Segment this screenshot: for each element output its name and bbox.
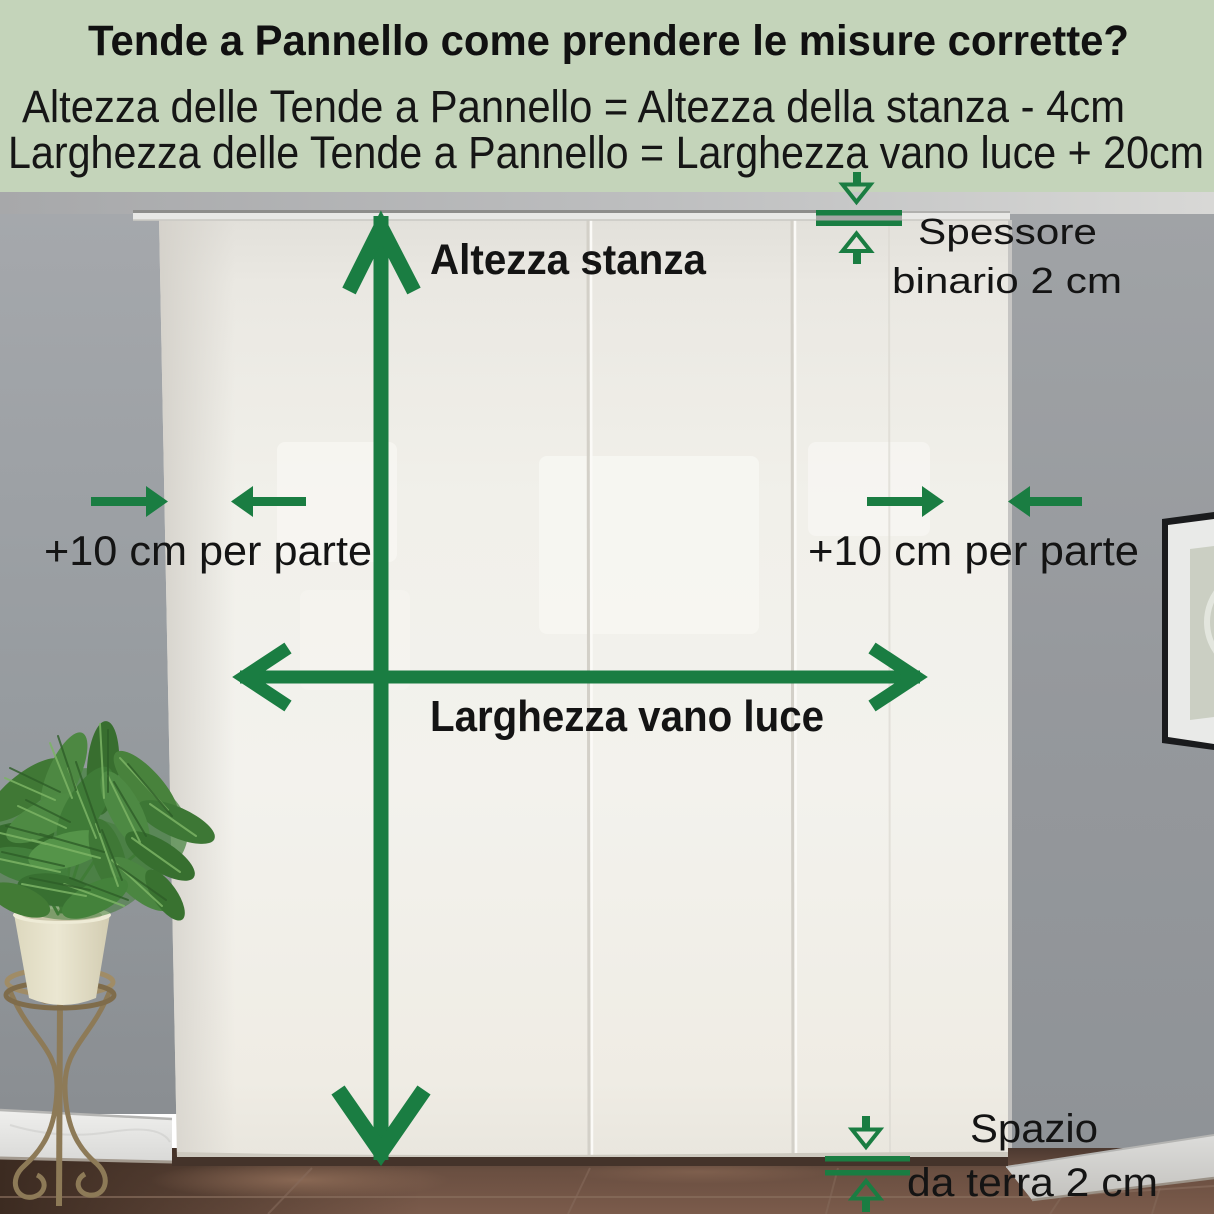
svg-text:Altezza stanza: Altezza stanza: [430, 236, 707, 284]
svg-text:da terra 2 cm: da terra 2 cm: [907, 1161, 1158, 1205]
svg-text:Larghezza vano luce: Larghezza vano luce: [430, 692, 824, 741]
svg-text:binario 2 cm: binario 2 cm: [892, 260, 1122, 301]
svg-text:+10 cm per parte: +10 cm per parte: [808, 527, 1139, 574]
svg-text:Spazio: Spazio: [970, 1107, 1098, 1151]
svg-text:Larghezza delle Tende a Pannel: Larghezza delle Tende a Pannello = Largh…: [8, 127, 1204, 178]
svg-text:Altezza delle Tende a Pannello: Altezza delle Tende a Pannello = Altezza…: [22, 81, 1125, 132]
svg-text:Spessore: Spessore: [918, 211, 1097, 252]
svg-text:+10 cm per parte: +10 cm per parte: [44, 527, 372, 574]
svg-text:Tende a Pannello come prendere: Tende a Pannello come prendere le misure…: [88, 17, 1129, 65]
